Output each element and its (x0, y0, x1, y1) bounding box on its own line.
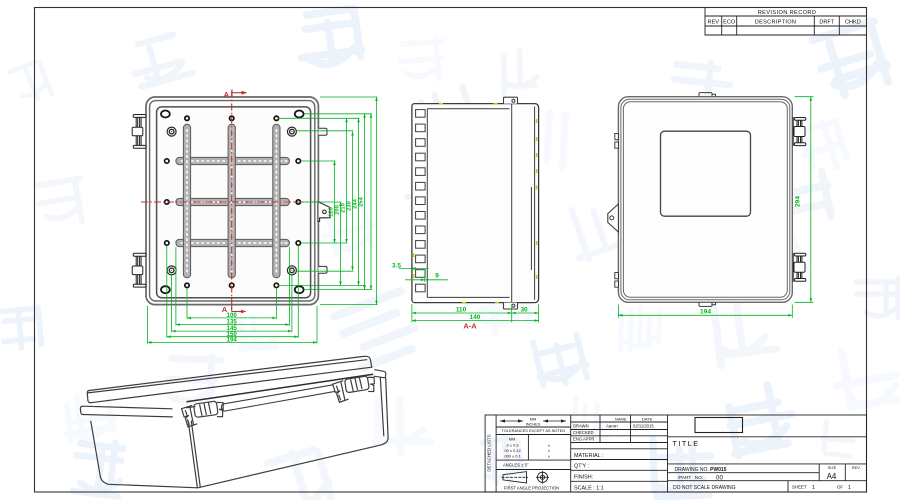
svg-text:REVISION RECORD: REVISION RECORD (758, 10, 817, 16)
svg-text:/PART NO.: /PART NO. (678, 475, 703, 480)
svg-text:DATE: DATE (642, 417, 653, 422)
svg-text:SHEET: SHEET (792, 485, 807, 490)
svg-text:1: 1 (812, 485, 815, 491)
svg-text:NAME: NAME (615, 417, 627, 422)
svg-text:A4: A4 (827, 472, 837, 481)
svg-text:INCHES: INCHES (526, 422, 541, 427)
svg-text:REV: REV (708, 20, 720, 26)
svg-text:110: 110 (456, 306, 467, 313)
svg-text:QT'Y :: QT'Y : (574, 464, 589, 470)
svg-text:194: 194 (700, 309, 711, 316)
svg-text:02/11/2015: 02/11/2015 (633, 423, 654, 428)
svg-text:00: 00 (716, 475, 723, 482)
svg-text:MM: MM (509, 436, 515, 441)
svg-text:254: 254 (359, 196, 365, 206)
svg-text:FIRST ANGLE PROJECTION: FIRST ANGLE PROJECTION (504, 486, 559, 491)
svg-text:FINISH:: FINISH: (574, 475, 593, 481)
svg-text:9: 9 (435, 272, 439, 279)
svg-text:A: A (224, 90, 230, 99)
svg-text:ECO: ECO (723, 20, 736, 26)
svg-text:.00 ± 0.12: .00 ± 0.12 (503, 448, 520, 453)
svg-text:CHECKED: CHECKED (573, 430, 593, 435)
svg-text:MATERIAL :: MATERIAL : (574, 453, 603, 459)
svg-text:DRAWING NO. PW015: DRAWING NO. PW015 (675, 467, 727, 473)
svg-text:CHKD: CHKD (845, 20, 861, 26)
svg-text:OF: OF (837, 485, 843, 490)
svg-text:.0 ± 0.3: .0 ± 0.3 (506, 442, 519, 447)
svg-text:ANGLES ± 5°: ANGLES ± 5° (503, 462, 529, 467)
svg-text:SIZE: SIZE (828, 465, 837, 470)
svg-text:DETACHED LISTS: DETACHED LISTS (487, 434, 492, 471)
svg-text:30: 30 (520, 306, 528, 313)
svg-text:DRFT: DRFT (819, 20, 834, 26)
svg-text:SCALE : 1:1: SCALE : 1:1 (574, 485, 604, 491)
svg-text:DESCRIPTION: DESCRIPTION (755, 20, 797, 26)
svg-text:A-A: A-A (463, 322, 477, 331)
svg-text:DRAWN: DRAWN (573, 423, 589, 428)
svg-text:Aaron: Aaron (606, 423, 618, 428)
svg-text:3.5: 3.5 (392, 262, 401, 269)
svg-text:DO NOT SCALE DRAWING: DO NOT SCALE DRAWING (673, 485, 736, 491)
svg-text:ENG APPR: ENG APPR (573, 437, 594, 442)
svg-text:TOLERANCES EXCEPT AS NOTED: TOLERANCES EXCEPT AS NOTED (502, 428, 566, 433)
svg-text:294: 294 (795, 196, 802, 207)
svg-text:194: 194 (227, 337, 238, 344)
svg-text:140: 140 (470, 314, 481, 321)
svg-text:TITLE: TITLE (673, 439, 700, 448)
svg-text:REV: REV (852, 465, 860, 470)
svg-text:.000 ± 0.1: .000 ± 0.1 (503, 453, 520, 458)
svg-text:1: 1 (848, 485, 851, 491)
